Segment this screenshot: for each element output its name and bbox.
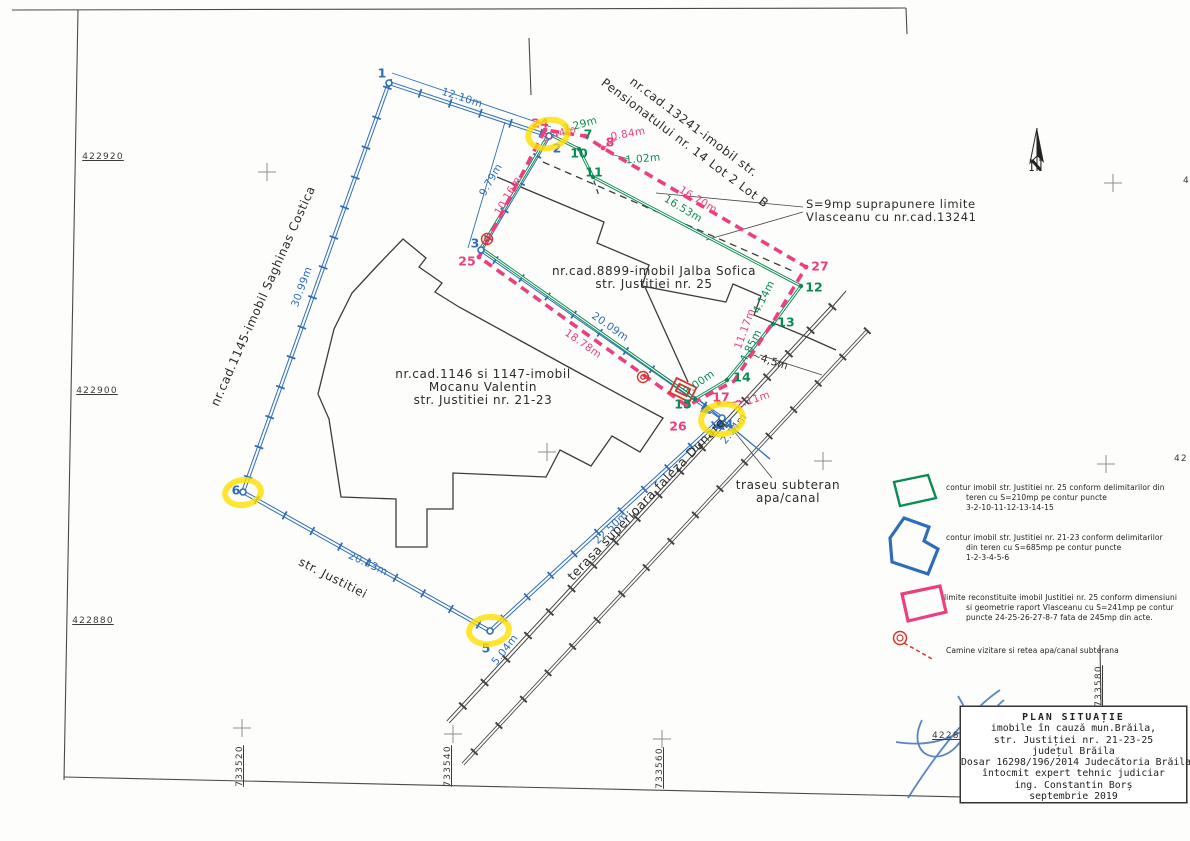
coord-422920: 422920	[82, 152, 124, 162]
legend-item1-line2: teren cu S=210mp pe contur puncte	[966, 493, 1107, 502]
title-block-title: PLAN SITUAȚIE	[961, 712, 1186, 723]
point-27: 27	[811, 259, 828, 274]
legend-item3-line1: limite reconstituite imobil Justitiei nr…	[944, 593, 1177, 602]
title-block-line4: județul Brăila	[961, 746, 1186, 757]
legend-icon-contour-21-23	[880, 512, 950, 580]
point-11: 11	[585, 165, 602, 180]
point-26: 26	[669, 419, 686, 434]
legend-item4-line1: Camine vizitare si retea apa/canal subte…	[946, 646, 1119, 655]
point-12: 12	[805, 280, 822, 295]
dim-1-02: 1.02m	[625, 151, 661, 166]
label-cad8899-line2: str. Justitiei nr. 25	[595, 277, 712, 291]
legend-item1-line1: contur imobil str. Justitiei nr. 25 conf…	[946, 483, 1165, 492]
legend-icon-manhole	[888, 626, 944, 668]
dim-20-43: 20.43m	[346, 550, 389, 579]
title-block-line2: imobile în cauză mun.Brăila,	[961, 723, 1186, 734]
label-terasa: terasa superioara faleza Dunare	[564, 415, 728, 584]
dim-9-79: 9.79m	[477, 162, 505, 198]
legend-item3-line3: puncte 24-25-26-27-8-7 fata de 245mp din…	[966, 613, 1153, 622]
point-8: 8	[606, 135, 615, 150]
coord-edge-42: 42	[1174, 454, 1188, 464]
legend-icon-contour-25	[884, 470, 942, 514]
point-1: 1	[378, 66, 387, 81]
label-cad1146-line3: str. Justitiei nr. 21-23	[414, 393, 553, 407]
coord-733520: 733520	[235, 745, 245, 787]
point-10: 10	[570, 146, 587, 161]
coord-733580: 733580	[1094, 665, 1104, 707]
scanned-site-plan: nr.cad.13241-imobil str.Pensionatului nr…	[0, 0, 1190, 841]
dim-12-10: 12.10m	[440, 86, 484, 110]
title-block: PLAN SITUAȚIE imobile în cauză mun.Brăil…	[960, 706, 1187, 803]
legend-item2-line3: 1-2-3-4-5-6	[966, 553, 1009, 562]
title-block-line5: Dosar 16298/196/2014 Judecătoria Brăila	[961, 757, 1186, 768]
label-cad8899-line1: nr.cad.8899-imobil Jalba Sofica	[552, 264, 756, 278]
title-block-line7: ing. Constantin Borș	[961, 780, 1186, 791]
label-overlap-line2: Vlasceanu cu nr.cad.13241	[806, 210, 977, 224]
north-label: N	[1029, 156, 1044, 175]
point-3: 3	[471, 236, 480, 251]
coord-733540: 733540	[443, 745, 453, 787]
legend-icon-limits-reconstituted	[892, 580, 954, 628]
legend-item1-line3: 3-2-10-11-12-13-14-15	[966, 503, 1054, 512]
coord-422880-left: 422880	[72, 616, 114, 626]
dim-0-84: 0.84m	[610, 125, 647, 143]
label-traseu-line1: traseu subteran	[736, 478, 841, 492]
label-cad1146-line2: Mocanu Valentin	[429, 380, 537, 394]
dim-20-09: 20.09m	[589, 310, 630, 344]
label-traseu-line2: apa/canal	[756, 491, 820, 505]
dim-4-5: ~4,5m	[750, 350, 789, 373]
legend-item2-line2: din teren cu S=685mp pe contur puncte	[966, 543, 1121, 552]
title-block-line3: str. Justiției nr. 21-23-25	[961, 735, 1186, 746]
point-25: 25	[458, 254, 475, 269]
label-cad1146-line1: nr.cad.1146 si 1147-imobil	[395, 367, 571, 381]
dim-18-78: 18.78m	[562, 327, 603, 361]
point-7: 7	[584, 127, 593, 142]
point-15: 15	[674, 397, 691, 412]
coord-733560: 733560	[655, 747, 665, 789]
legend-item3-line2: si geometrie raport Vlasceanu cu S=241mp…	[966, 603, 1174, 612]
label-overlap-line1: S=9mp suprapunere limite	[806, 197, 976, 211]
legend-item2-line1: contur imobil str. Justitiei nr. 21-23 c…	[946, 533, 1163, 542]
point-14: 14	[733, 370, 750, 385]
title-block-line8: septembrie 2019	[961, 791, 1186, 802]
coord-422900: 422900	[76, 386, 118, 396]
point-13: 13	[777, 315, 794, 330]
title-block-line6: întocmit expert tehnic judiciar	[961, 768, 1186, 779]
dim-30-99: 30.99m	[289, 265, 315, 309]
coord-edge-4: 4	[1183, 176, 1190, 186]
